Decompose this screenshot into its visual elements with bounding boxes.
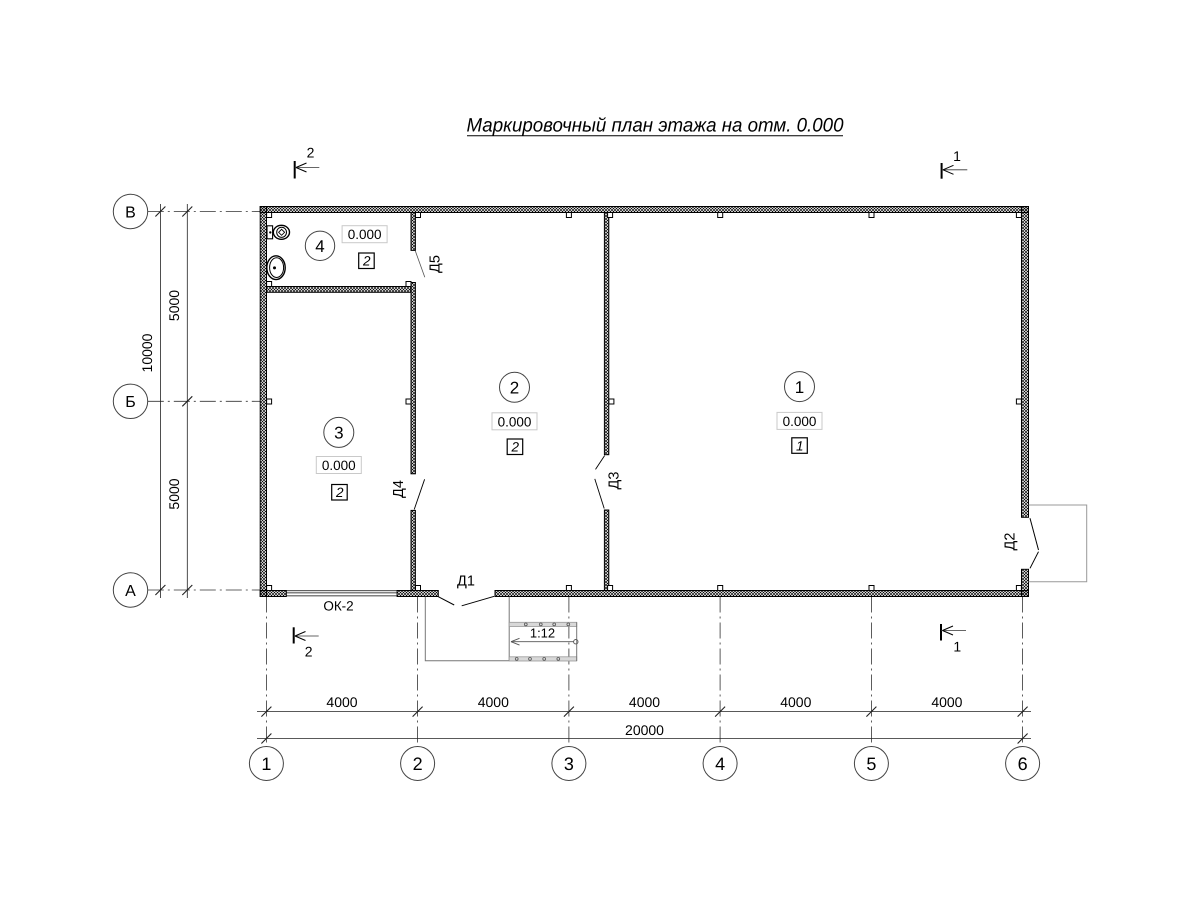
svg-text:0.000: 0.000 [348, 227, 382, 242]
svg-text:2: 2 [510, 379, 519, 398]
svg-text:1: 1 [953, 148, 961, 164]
svg-text:Д2: Д2 [1003, 533, 1019, 551]
svg-text:0.000: 0.000 [498, 414, 532, 429]
svg-text:Маркировочный план этажа на от: Маркировочный план этажа на отм. 0.000 [467, 115, 844, 137]
svg-text:4000: 4000 [326, 694, 357, 710]
svg-text:Д4: Д4 [391, 480, 407, 498]
svg-text:ОК-2: ОК-2 [323, 599, 353, 614]
svg-text:4000: 4000 [780, 694, 811, 710]
svg-text:Д1: Д1 [457, 574, 475, 590]
svg-text:4: 4 [315, 237, 324, 256]
svg-text:1:12: 1:12 [530, 626, 555, 641]
svg-text:4000: 4000 [478, 694, 509, 710]
svg-text:0.000: 0.000 [783, 414, 817, 429]
svg-text:3: 3 [564, 754, 574, 774]
svg-text:2: 2 [413, 754, 423, 774]
svg-text:В: В [125, 204, 136, 221]
svg-text:1: 1 [795, 378, 804, 397]
svg-text:10000: 10000 [139, 333, 155, 372]
svg-text:0.000: 0.000 [322, 458, 356, 473]
svg-text:2: 2 [362, 254, 371, 269]
svg-text:2: 2 [305, 643, 313, 659]
svg-text:Б: Б [125, 394, 136, 411]
svg-text:Д3: Д3 [607, 472, 623, 490]
svg-text:4000: 4000 [931, 694, 962, 710]
svg-text:3: 3 [334, 424, 343, 443]
svg-text:А: А [125, 583, 136, 600]
svg-text:1: 1 [953, 639, 961, 655]
svg-text:Д5: Д5 [428, 255, 444, 273]
svg-text:4000: 4000 [629, 694, 660, 710]
svg-text:20000: 20000 [625, 722, 664, 738]
svg-text:5: 5 [866, 754, 876, 774]
svg-text:5000: 5000 [166, 478, 182, 509]
svg-text:2: 2 [335, 485, 344, 500]
svg-text:2: 2 [307, 145, 315, 161]
svg-text:4: 4 [715, 754, 725, 774]
svg-text:1: 1 [796, 438, 804, 453]
svg-text:5000: 5000 [166, 290, 182, 321]
svg-text:6: 6 [1018, 754, 1028, 774]
svg-text:2: 2 [510, 440, 519, 455]
svg-text:1: 1 [261, 754, 271, 774]
